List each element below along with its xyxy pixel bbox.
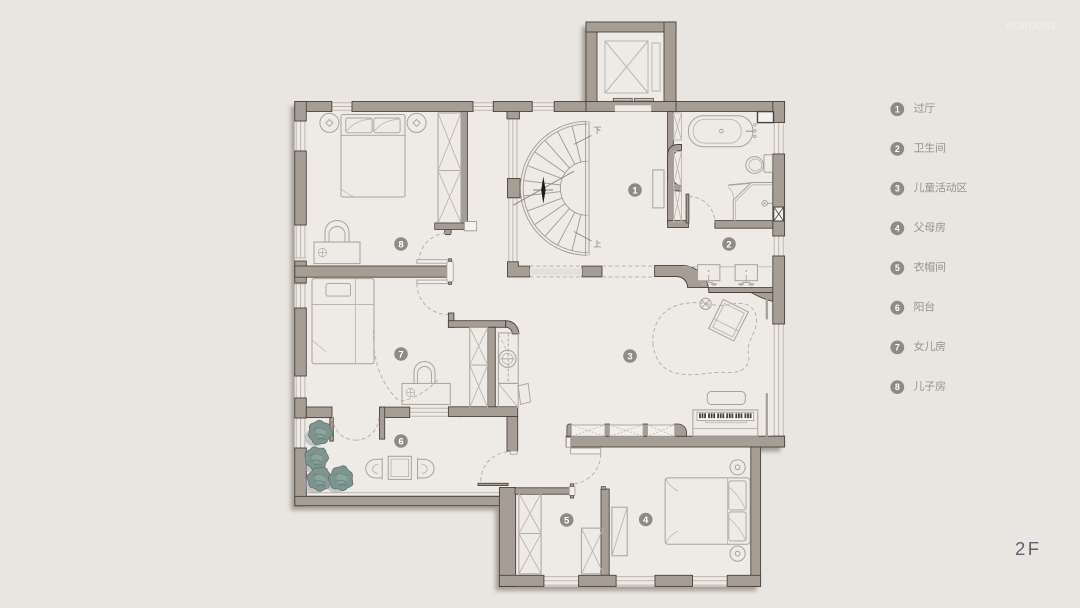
svg-text:PCHOUSE: PCHOUSE (1006, 22, 1058, 33)
svg-text:4: 4 (895, 223, 900, 233)
svg-text:3: 3 (627, 351, 632, 362)
svg-text:7: 7 (398, 349, 403, 360)
svg-text:1: 1 (895, 104, 900, 114)
svg-text:6: 6 (398, 436, 403, 447)
svg-text:8: 8 (895, 382, 900, 392)
svg-text:5: 5 (564, 515, 570, 526)
svg-text:6: 6 (895, 303, 900, 313)
svg-text:2: 2 (726, 239, 731, 250)
svg-text:2: 2 (895, 144, 900, 154)
svg-text:4: 4 (643, 515, 649, 526)
svg-text:7: 7 (895, 343, 900, 353)
svg-text:8: 8 (398, 239, 403, 250)
svg-text:1: 1 (632, 185, 638, 196)
svg-text:3: 3 (895, 184, 900, 194)
svg-text:5: 5 (895, 263, 900, 273)
svg-text:2F: 2F (1015, 538, 1042, 559)
